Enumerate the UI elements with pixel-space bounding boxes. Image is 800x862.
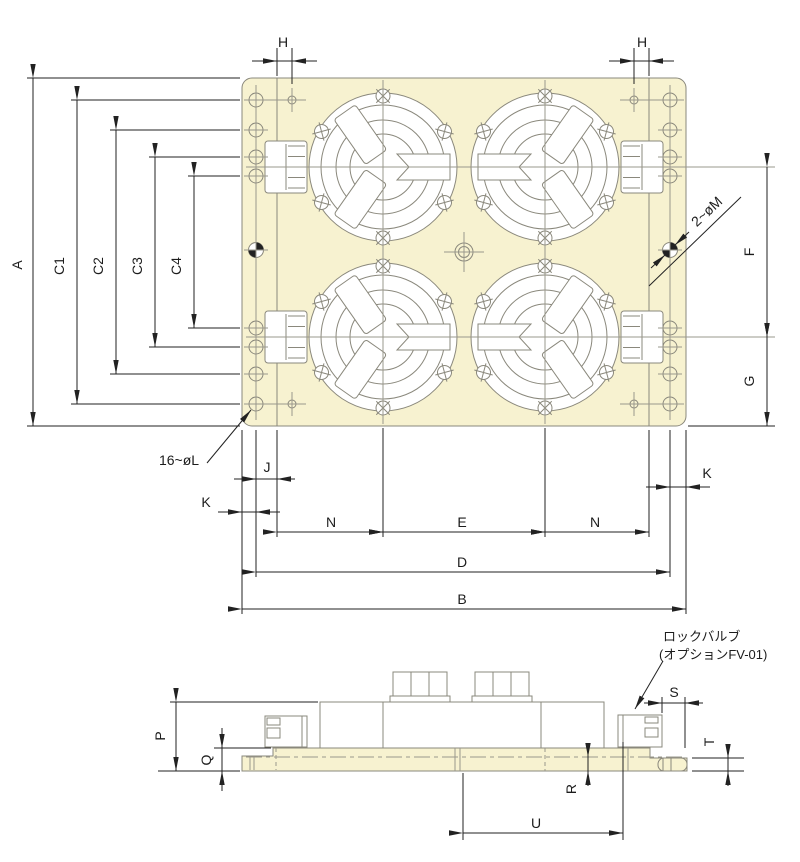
label-lock-valve-line1: ロックバルブ [663,629,740,644]
label-T: T [701,737,717,746]
label-N-left: N [326,514,336,530]
drawing-page: H H A C1 C2 C3 C4 F G 2~øM 16~øL J K K N… [0,0,800,862]
label-N-right: N [590,514,600,530]
label-K-left: K [201,494,211,510]
label-U: U [531,815,541,831]
label-J: J [264,459,271,475]
label-R: R [563,784,579,794]
side-valve-left [265,716,307,747]
label-C2: C2 [90,257,106,275]
side-plate-end-cap [658,758,687,771]
leader-16-ol [207,410,251,463]
label-holes-l: 16~øL [159,452,199,468]
side-chuck-stand [390,672,450,702]
label-P: P [152,731,168,740]
label-holes-m: 2~øM [688,193,725,229]
label-H-right: H [637,34,647,50]
label-Q: Q [198,754,214,765]
label-K-right: K [702,465,712,481]
label-F: F [741,248,757,257]
side-chuck-stand [472,672,532,702]
label-C1: C1 [51,257,67,275]
label-S: S [669,684,678,700]
side-body [320,702,604,748]
label-D: D [457,554,467,570]
label-lock-valve-line2: (オプションFV-01) [659,647,767,662]
label-B: B [457,591,466,607]
label-C3: C3 [129,257,145,275]
label-H-left: H [278,34,288,50]
label-G: G [741,376,757,387]
label-C4: C4 [168,257,184,275]
technical-drawing: H H A C1 C2 C3 C4 F G 2~øM 16~øL J K K N… [0,0,800,862]
leader-lock-valve [635,661,663,709]
label-E: E [457,514,466,530]
side-base-plate [242,748,687,771]
side-lock-valve [618,715,662,747]
label-A: A [9,260,25,270]
top-view [242,78,775,426]
side-view [242,672,687,771]
